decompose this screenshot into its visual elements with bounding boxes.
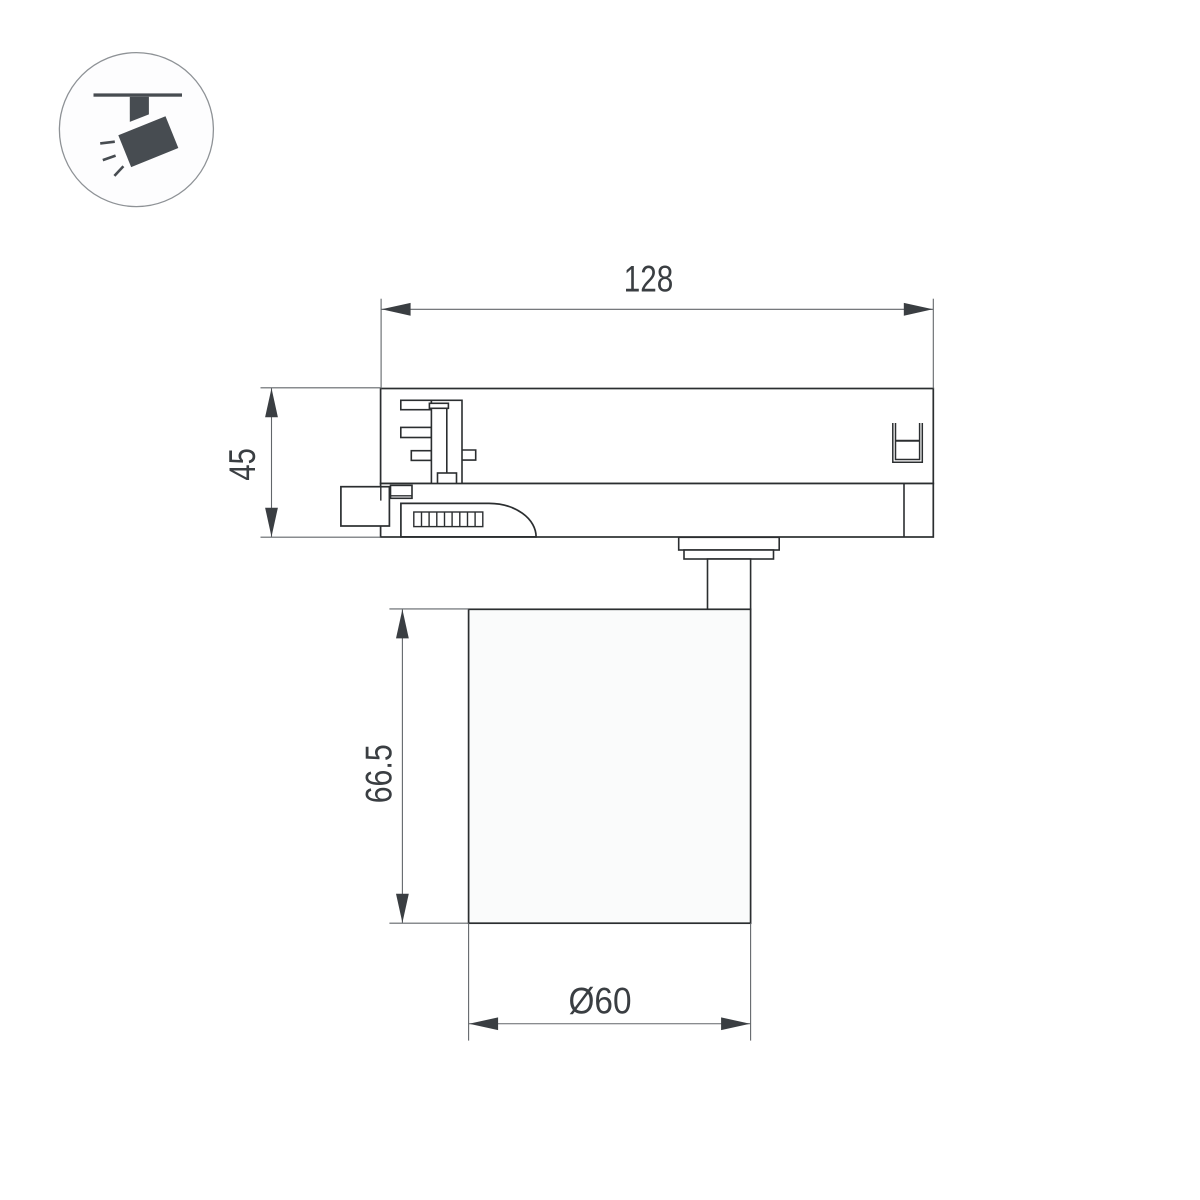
svg-text:128: 128 xyxy=(624,259,674,300)
svg-text:45: 45 xyxy=(222,448,263,481)
svg-text:66.5: 66.5 xyxy=(359,744,400,803)
svg-text:Ø60: Ø60 xyxy=(569,981,632,1022)
